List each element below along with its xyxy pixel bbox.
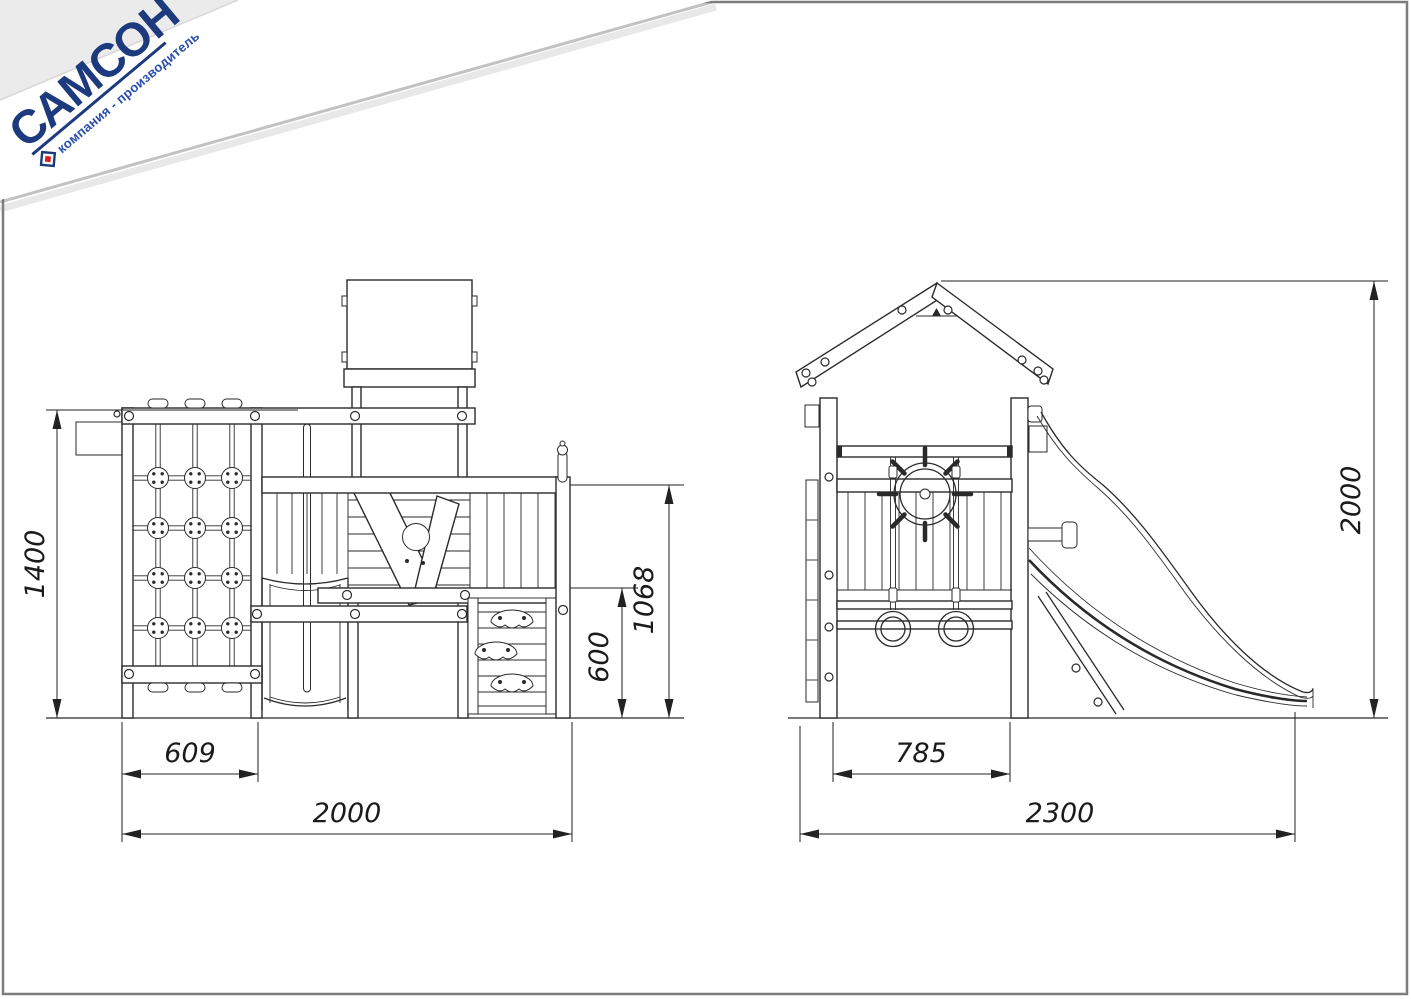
steering-wheel	[879, 448, 971, 540]
dim-label-2000-front: 2000	[313, 798, 382, 829]
dimension-600: 600	[570, 588, 638, 718]
dimension-785: 785	[833, 722, 1010, 782]
dim-label-785: 785	[895, 738, 947, 769]
climbing-net	[122, 408, 262, 718]
drawing-sheet: 1400 609 2000 600 1068	[0, 0, 1411, 999]
net-connector	[148, 618, 169, 639]
net-connector	[222, 568, 243, 589]
net-connector	[148, 518, 169, 539]
side-post-right	[1011, 398, 1028, 718]
net-connector	[185, 468, 206, 489]
side-view-drawing	[788, 283, 1388, 718]
net-connector	[222, 468, 243, 489]
side-shelf	[76, 422, 123, 455]
net-connector	[148, 568, 169, 589]
back-ladder	[805, 405, 819, 702]
slide-support	[1038, 592, 1124, 714]
dim-label-2300: 2300	[1026, 798, 1095, 829]
climbing-grip	[491, 610, 533, 628]
dim-label-609: 609	[164, 738, 216, 769]
net-connector	[185, 618, 206, 639]
handle-pole	[558, 441, 568, 482]
logo-banner: САМСОН компания - производитель	[0, 0, 716, 209]
post-knob	[1028, 406, 1047, 452]
v-brace-panel	[348, 483, 470, 605]
roof-board-left	[796, 283, 942, 387]
net-connector	[185, 568, 206, 589]
right-post-front	[556, 477, 570, 718]
right-slat-panel	[470, 493, 562, 590]
handle-knob	[1028, 522, 1077, 548]
climbing-grip	[491, 674, 533, 692]
side-post-left	[820, 398, 837, 718]
top-rail	[114, 399, 475, 424]
net-connector	[222, 518, 243, 539]
mid-left-slats	[277, 493, 337, 574]
dim-label-600: 600	[584, 631, 615, 683]
net-connector	[185, 518, 206, 539]
dimension-609: 609	[122, 722, 258, 782]
tower-roof-box	[342, 280, 477, 480]
technical-drawing-canvas: 1400 609 2000 600 1068	[0, 0, 1411, 999]
porthole	[403, 524, 430, 551]
deck-rail	[262, 477, 562, 493]
net-connector	[222, 618, 243, 639]
gable-roof	[796, 283, 1053, 387]
climbing-grip	[475, 642, 517, 660]
climbing-wall	[468, 598, 556, 714]
dim-label-1400: 1400	[20, 530, 51, 599]
dimension-2300: 2300	[800, 712, 1295, 842]
slide-side	[1029, 412, 1313, 708]
net-connector	[148, 468, 169, 489]
dim-label-1068: 1068	[629, 566, 660, 635]
dim-label-2000-side: 2000	[1336, 466, 1367, 535]
